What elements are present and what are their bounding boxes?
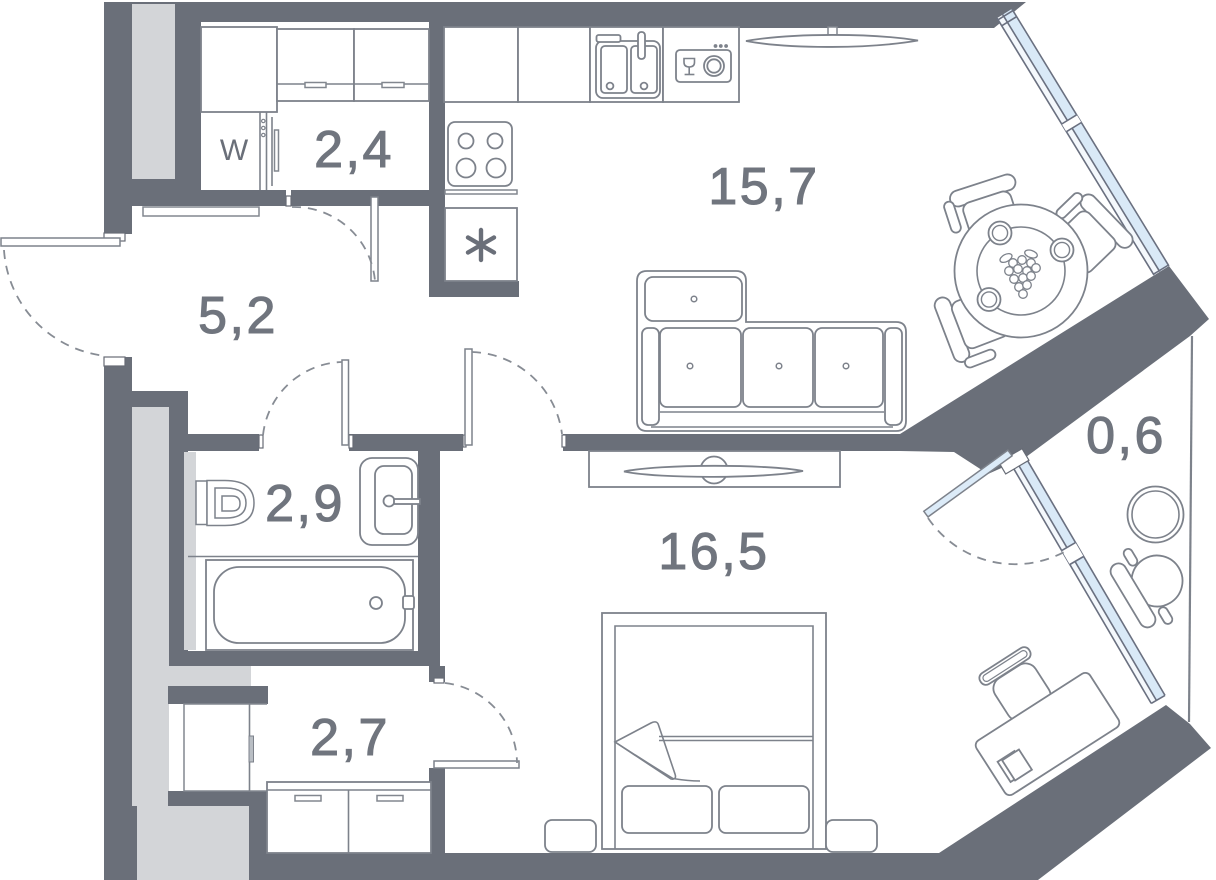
svg-text:16,5: 16,5 [658, 523, 769, 581]
svg-text:0,6: 0,6 [1086, 407, 1166, 465]
svg-text:15,7: 15,7 [708, 158, 819, 216]
svg-text:W: W [220, 134, 249, 167]
svg-text:2,7: 2,7 [310, 709, 390, 767]
svg-text:2,4: 2,4 [314, 121, 394, 179]
svg-text:2,9: 2,9 [265, 475, 345, 533]
svg-text:5,2: 5,2 [198, 287, 278, 345]
